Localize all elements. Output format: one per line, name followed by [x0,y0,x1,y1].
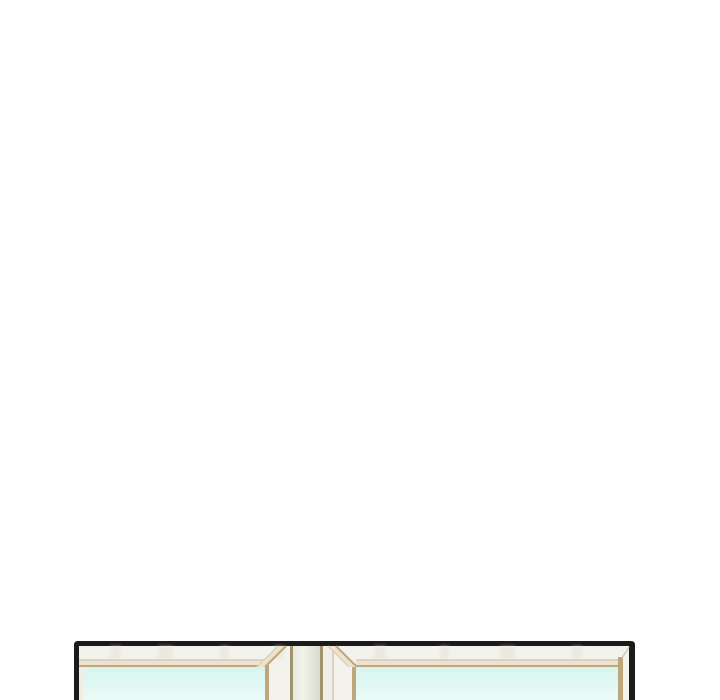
left-pane-glass [83,667,265,700]
right-sash-stile-tan-border [352,667,356,700]
left-sash-band-shadow [79,659,265,661]
mullion-edge-line [332,646,334,700]
left-sash-stile-tan-border [265,665,269,700]
left-sash-band-tan [79,665,265,667]
right-sash-band-tan [356,665,618,667]
right-pane-glass [356,667,618,700]
mullion-side-strip [323,646,332,700]
center-mullion [290,646,334,700]
left-sash-left-strip [79,667,83,700]
right-sash-band-cream [356,661,618,665]
window-illustration [74,641,635,700]
right-sash-band-shadow [356,659,618,661]
mullion-face [293,646,320,700]
right-border-tan [618,657,623,700]
comic-page [0,0,720,700]
left-sash-band-cream [79,661,265,665]
mullion-tan-line-left [290,646,293,700]
mullion-tan-line-right [320,646,323,700]
